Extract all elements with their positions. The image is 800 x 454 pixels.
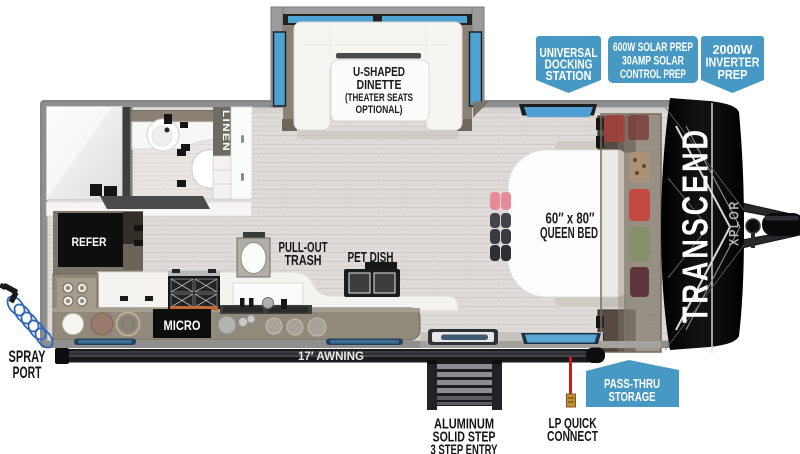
- svg-text:MICRO: MICRO: [164, 318, 201, 333]
- svg-text:600W SOLAR PREP: 600W SOLAR PREP: [613, 42, 693, 54]
- svg-text:OPTIONAL): OPTIONAL): [356, 104, 403, 116]
- svg-text:3 STEP ENTRY: 3 STEP ENTRY: [431, 442, 498, 454]
- svg-text:DINETTE: DINETTE: [357, 78, 402, 92]
- svg-text:CONNECT: CONNECT: [547, 428, 598, 445]
- svg-text:REFER: REFER: [72, 235, 107, 249]
- svg-text:PORT: PORT: [13, 363, 42, 382]
- svg-text:TRASH: TRASH: [285, 253, 322, 269]
- svg-text:QUEEN BED: QUEEN BED: [540, 225, 598, 242]
- svg-text:PREP: PREP: [718, 68, 748, 82]
- svg-text:STATION: STATION: [546, 69, 592, 83]
- svg-text:XPLOR: XPLOR: [726, 200, 742, 246]
- svg-text:TRANSCEND: TRANSCEND: [675, 127, 716, 323]
- svg-text:CONTROL PREP: CONTROL PREP: [620, 69, 686, 81]
- svg-text:LINEN: LINEN: [220, 110, 231, 152]
- svg-text:17′ AWNING: 17′ AWNING: [298, 351, 364, 363]
- svg-text:U-SHAPED: U-SHAPED: [353, 65, 405, 79]
- svg-text:(THEATER SEATS: (THEATER SEATS: [345, 92, 413, 104]
- svg-text:STORAGE: STORAGE: [609, 389, 656, 404]
- svg-text:30AMP SOLAR: 30AMP SOLAR: [622, 56, 685, 68]
- svg-text:PET DISH: PET DISH: [348, 249, 394, 266]
